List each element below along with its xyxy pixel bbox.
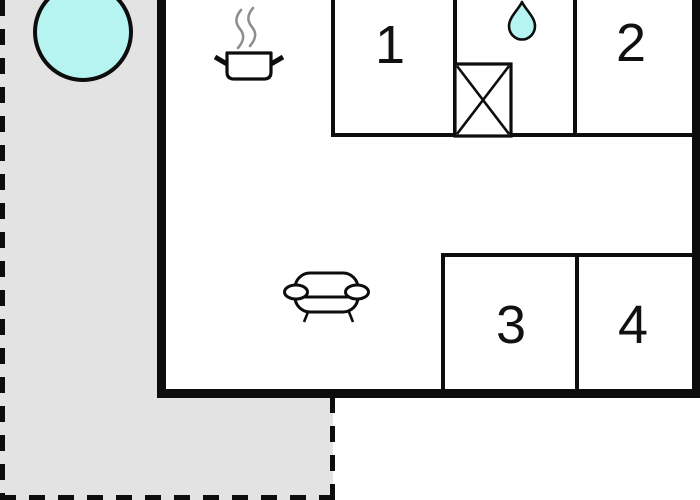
wall-rooms34-top — [441, 253, 700, 257]
wall-exterior-bottom — [157, 389, 700, 398]
floorplan-canvas: 1 2 3 4 — [0, 0, 700, 500]
boundary-dashed-line-left — [0, 0, 5, 500]
wall-bathroom-right — [573, 0, 577, 137]
wall-rooms34-divider — [575, 253, 579, 393]
room-2-label: 2 — [616, 16, 646, 70]
steam-icon — [236, 8, 255, 48]
room-4-label: 4 — [618, 298, 648, 352]
wall-exterior-left — [157, 0, 166, 397]
boundary-dashed-line-terrace-right — [330, 397, 335, 500]
terrace-area-bottom — [0, 396, 333, 500]
boundary-dashed-line-terrace-bottom — [0, 495, 336, 500]
room-3-label: 3 — [496, 298, 526, 352]
cooking-pot-icon — [210, 4, 290, 84]
wall-room1-left — [331, 0, 335, 137]
wall-top-rooms-bottom — [331, 133, 700, 137]
room-1-label: 1 — [375, 18, 405, 72]
shower-box-icon — [453, 62, 513, 138]
water-drop-icon — [503, 0, 541, 42]
wall-exterior-right — [692, 0, 700, 398]
sofa-icon — [283, 266, 375, 326]
wall-room3-left — [441, 253, 445, 393]
